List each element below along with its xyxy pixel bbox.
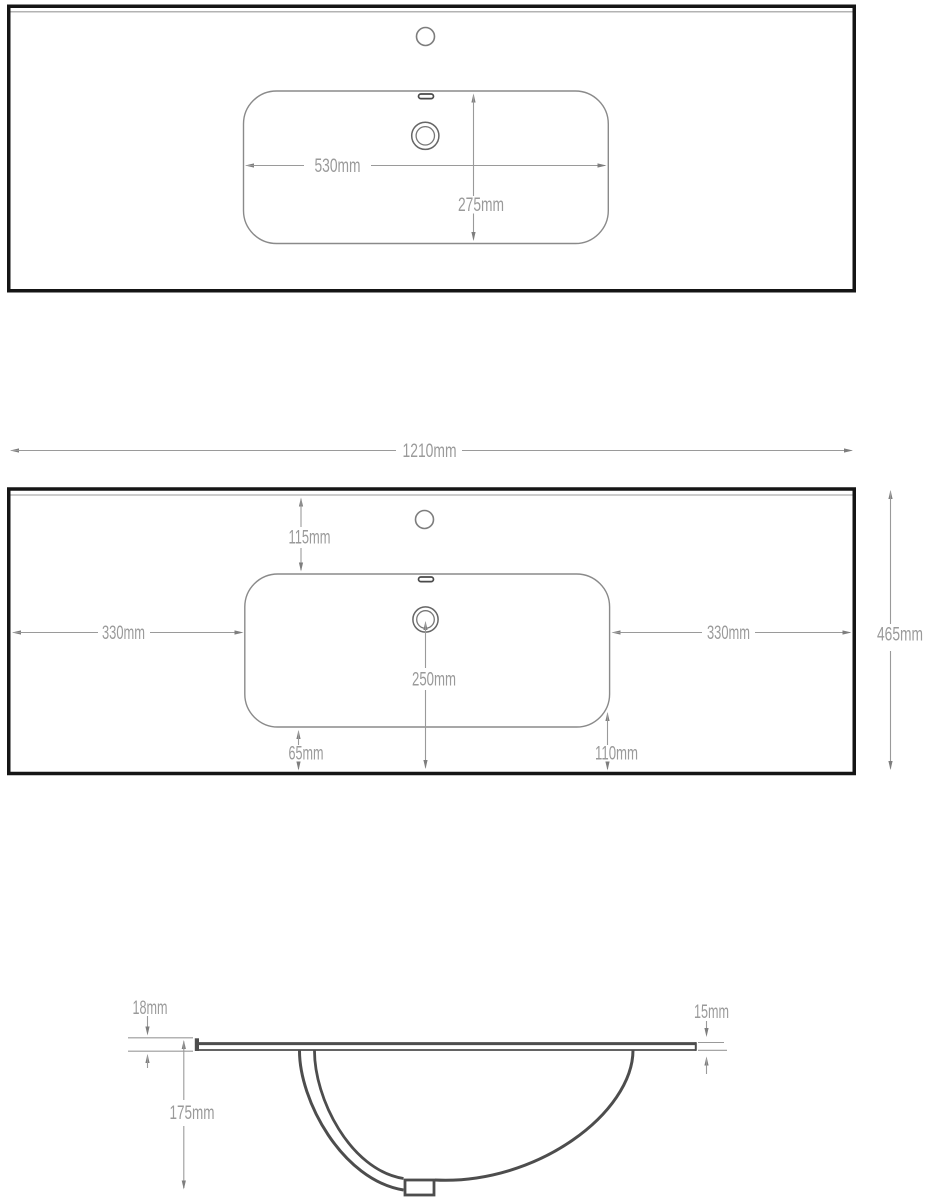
- svg-text:15mm: 15mm: [694, 1002, 729, 1023]
- svg-text:250mm: 250mm: [412, 670, 456, 691]
- svg-text:115mm: 115mm: [289, 528, 331, 549]
- svg-text:330mm: 330mm: [707, 623, 750, 644]
- svg-text:110mm: 110mm: [595, 744, 638, 765]
- svg-text:65mm: 65mm: [289, 744, 324, 765]
- svg-text:530mm: 530mm: [315, 156, 361, 177]
- svg-text:330mm: 330mm: [102, 623, 145, 644]
- svg-text:18mm: 18mm: [133, 998, 168, 1019]
- svg-text:465mm: 465mm: [877, 625, 923, 646]
- svg-text:175mm: 175mm: [170, 1103, 215, 1124]
- svg-text:275mm: 275mm: [458, 195, 504, 216]
- svg-text:1210mm: 1210mm: [403, 441, 457, 462]
